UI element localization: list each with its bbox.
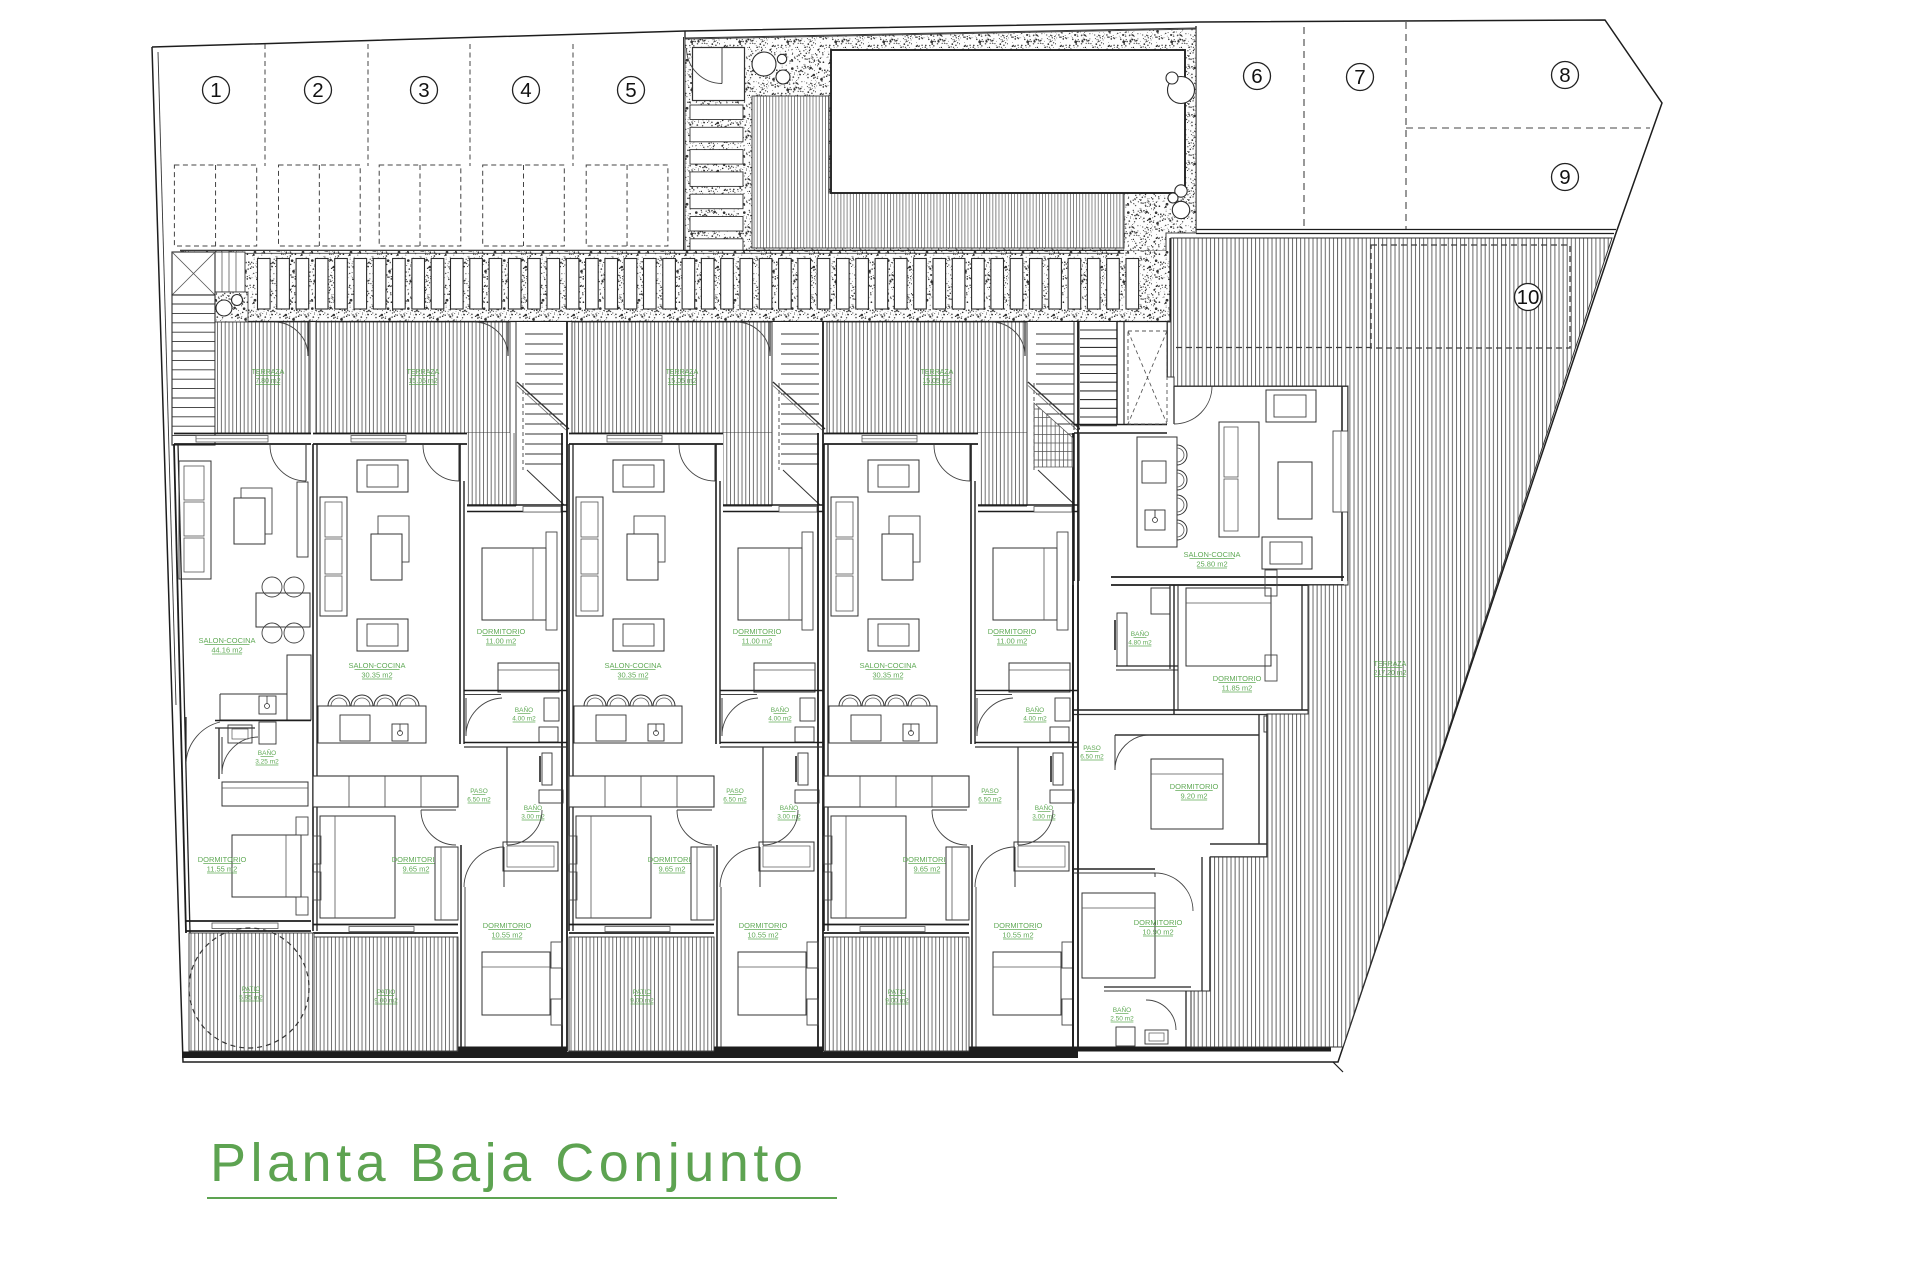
svg-text:DORMITORIO: DORMITORIO (477, 627, 526, 636)
svg-text:217.20 m2: 217.20 m2 (1373, 670, 1406, 677)
svg-text:4.00 m2: 4.00 m2 (1023, 716, 1047, 723)
svg-text:4.00 m2: 4.00 m2 (512, 716, 536, 723)
svg-text:6.50 m2: 6.50 m2 (467, 797, 491, 804)
svg-text:6.50 m2: 6.50 m2 (978, 797, 1002, 804)
svg-text:DORMITORIO: DORMITORIO (1170, 782, 1219, 791)
svg-text:DORMITORIO: DORMITORIO (903, 855, 952, 864)
svg-text:3: 3 (418, 79, 429, 102)
svg-text:DORMITORIO: DORMITORIO (988, 627, 1037, 636)
svg-text:4.00 m2: 4.00 m2 (768, 716, 792, 723)
svg-text:DORMITORIO: DORMITORIO (994, 921, 1043, 930)
svg-text:3.25 m2: 3.25 m2 (255, 759, 279, 766)
svg-text:9.00 m2: 9.00 m2 (630, 998, 654, 1005)
svg-text:DORMITORIO: DORMITORIO (1134, 918, 1183, 927)
svg-text:6.50 m2: 6.50 m2 (723, 797, 747, 804)
svg-text:9.65 m2: 9.65 m2 (658, 865, 685, 874)
svg-text:11.00 m2: 11.00 m2 (997, 637, 1028, 646)
svg-text:BAÑO: BAÑO (515, 705, 533, 714)
svg-text:10.55 m2: 10.55 m2 (1002, 931, 1033, 940)
svg-text:SALON-COCINA: SALON-COCINA (198, 636, 255, 645)
svg-text:TERRAZA: TERRAZA (666, 369, 699, 376)
svg-text:BAÑO: BAÑO (780, 803, 798, 812)
svg-text:6: 6 (1251, 65, 1262, 88)
svg-text:44.16 m2: 44.16 m2 (211, 646, 242, 655)
svg-text:BAÑO: BAÑO (258, 748, 276, 757)
svg-text:PATIO: PATIO (377, 989, 396, 996)
svg-text:DORMITORIO: DORMITORIO (733, 627, 782, 636)
svg-text:7.80 m2: 7.80 m2 (255, 378, 280, 385)
svg-text:10.55 m2: 10.55 m2 (747, 931, 778, 940)
svg-text:SALON-COCINA: SALON-COCINA (348, 661, 405, 670)
svg-text:PATIO: PATIO (242, 986, 261, 993)
svg-text:9: 9 (1559, 166, 1570, 189)
svg-text:11.00 m2: 11.00 m2 (742, 637, 773, 646)
svg-text:PASO: PASO (1083, 745, 1101, 752)
svg-text:SALON-COCINA: SALON-COCINA (604, 661, 661, 670)
svg-text:TERRAZA: TERRAZA (921, 369, 954, 376)
svg-text:BAÑO: BAÑO (1113, 1005, 1131, 1014)
svg-text:DORMITORIO: DORMITORIO (1213, 674, 1262, 683)
svg-text:30.35 m2: 30.35 m2 (617, 671, 648, 680)
svg-text:10.55 m2: 10.55 m2 (491, 931, 522, 940)
svg-text:2.50 m2: 2.50 m2 (1110, 1016, 1134, 1023)
svg-text:11.55 m2: 11.55 m2 (207, 865, 238, 874)
svg-text:9.65 m2: 9.65 m2 (402, 865, 429, 874)
svg-text:9.00 m2: 9.00 m2 (374, 998, 398, 1005)
svg-text:5.95 m2: 5.95 m2 (239, 995, 263, 1002)
svg-text:15.05 m2: 15.05 m2 (408, 378, 437, 385)
svg-text:DORMITORIO: DORMITORIO (198, 855, 247, 864)
svg-text:BAÑO: BAÑO (1026, 705, 1044, 714)
svg-text:DORMITORIO: DORMITORIO (739, 921, 788, 930)
svg-text:PATIO: PATIO (633, 989, 652, 996)
svg-text:PASO: PASO (726, 788, 744, 795)
svg-text:PASO: PASO (470, 788, 488, 795)
svg-text:25.80 m2: 25.80 m2 (1196, 560, 1227, 569)
svg-text:DORMITORIO: DORMITORIO (648, 855, 697, 864)
svg-text:9.20 m2: 9.20 m2 (1180, 792, 1207, 801)
svg-text:DORMITORIO: DORMITORIO (483, 921, 532, 930)
svg-text:6.50 m2: 6.50 m2 (1080, 754, 1104, 761)
svg-text:15.05 m2: 15.05 m2 (922, 378, 951, 385)
svg-text:30.35 m2: 30.35 m2 (361, 671, 392, 680)
svg-text:11.00 m2: 11.00 m2 (486, 637, 517, 646)
svg-text:7: 7 (1354, 66, 1365, 89)
svg-text:30.35 m2: 30.35 m2 (872, 671, 903, 680)
svg-text:BAÑO: BAÑO (1035, 803, 1053, 812)
svg-text:SALON-COCINA: SALON-COCINA (1183, 550, 1240, 559)
svg-text:TERRAZA: TERRAZA (1374, 661, 1407, 668)
svg-text:9.65 m2: 9.65 m2 (913, 865, 940, 874)
svg-text:2: 2 (312, 79, 323, 102)
svg-text:5: 5 (625, 79, 636, 102)
svg-text:10.90 m2: 10.90 m2 (1142, 928, 1173, 937)
svg-text:15.05 m2: 15.05 m2 (667, 378, 696, 385)
svg-text:BAÑO: BAÑO (1131, 629, 1149, 638)
svg-text:PASO: PASO (981, 788, 999, 795)
svg-text:PATIO: PATIO (888, 989, 907, 996)
svg-text:TERRAZA: TERRAZA (252, 369, 285, 376)
svg-text:Planta Baja Conjunto: Planta Baja Conjunto (210, 1133, 807, 1193)
svg-text:11.85 m2: 11.85 m2 (1222, 684, 1253, 693)
svg-text:SALON-COCINA: SALON-COCINA (859, 661, 916, 670)
svg-text:10: 10 (1517, 286, 1540, 309)
svg-text:1: 1 (210, 79, 221, 102)
svg-text:9.00 m2: 9.00 m2 (885, 998, 909, 1005)
svg-text:BAÑO: BAÑO (771, 705, 789, 714)
svg-text:TERRAZA: TERRAZA (407, 369, 440, 376)
svg-text:4.80 m2: 4.80 m2 (1128, 640, 1152, 647)
svg-text:BAÑO: BAÑO (524, 803, 542, 812)
svg-text:8: 8 (1559, 64, 1570, 87)
svg-text:4: 4 (520, 79, 531, 102)
svg-text:DORMITORIO: DORMITORIO (392, 855, 441, 864)
